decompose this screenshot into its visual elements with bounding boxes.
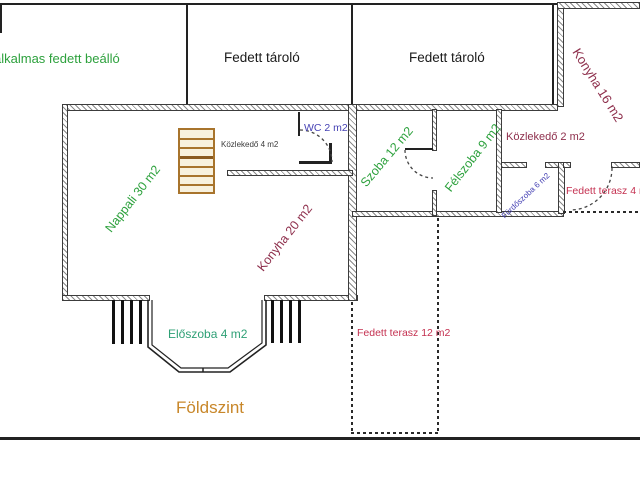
- floor-plan: alkalmas fedett beálló Fedett tároló Fed…: [0, 0, 640, 480]
- room-label-carport: alkalmas fedett beálló: [0, 52, 120, 65]
- room-label-storage-2: Fedett tároló: [409, 51, 485, 65]
- room-label-kozlekedo2: Közlekedő 2 m2: [506, 132, 585, 143]
- room-label-kozlekedo4: Közlekedő 4 m2: [221, 141, 278, 149]
- door-arc-wc: [300, 130, 332, 162]
- bay-and-doors-overlay: [0, 0, 640, 480]
- floor-title: Földszint: [176, 399, 244, 416]
- room-label-wc: WC 2 m2: [304, 123, 348, 134]
- room-label-terasz4: Fedett terasz 4 m2: [566, 186, 640, 197]
- room-label-storage-1: Fedett tároló: [224, 51, 300, 65]
- door-arc-szoba: [405, 150, 433, 178]
- room-label-eloszoba4: Előszoba 4 m2: [168, 328, 247, 340]
- room-label-terasz12: Fedett terasz 12 m2: [357, 328, 450, 339]
